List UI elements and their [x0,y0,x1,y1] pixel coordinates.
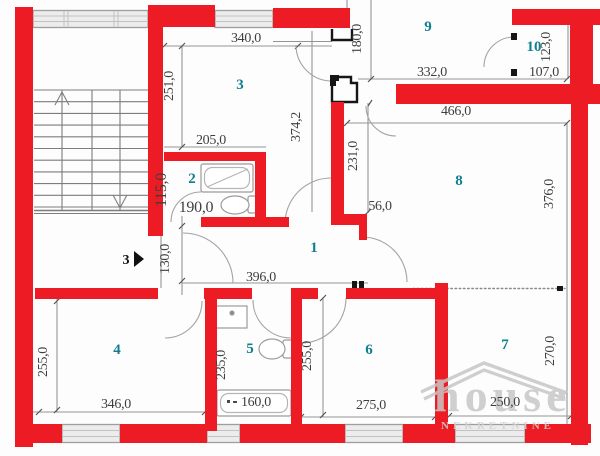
svg-text:3: 3 [236,77,244,93]
svg-text:4: 4 [113,342,121,358]
svg-text:275,0: 275,0 [356,398,386,413]
svg-text:235,0: 235,0 [214,350,229,380]
svg-text:8: 8 [455,173,463,189]
svg-text:1: 1 [310,240,318,256]
svg-text:231,0: 231,0 [346,141,361,171]
svg-text:251,0: 251,0 [162,71,177,101]
svg-text:160,0: 160,0 [241,395,271,410]
svg-text:396,0: 396,0 [246,270,276,285]
svg-text:NEKRETNINE: NEKRETNINE [441,420,555,432]
svg-text:6: 6 [365,342,373,358]
svg-text:2: 2 [188,171,196,187]
svg-text:190,0: 190,0 [179,199,214,216]
svg-text:9: 9 [424,19,432,35]
svg-text:7: 7 [501,337,509,353]
svg-text:250,0: 250,0 [490,395,520,410]
svg-text:5: 5 [246,341,254,357]
svg-text:3: 3 [123,253,130,268]
svg-text:255,0: 255,0 [300,341,315,371]
svg-text:130,0: 130,0 [158,244,173,274]
svg-text:466,0: 466,0 [441,104,471,119]
svg-text:107,0: 107,0 [529,65,559,80]
svg-text:332,0: 332,0 [417,65,447,80]
svg-text:56,0: 56,0 [368,199,392,214]
svg-text:374,2: 374,2 [289,112,304,142]
svg-text:346,0: 346,0 [101,397,131,412]
svg-text:376,0: 376,0 [542,179,557,209]
svg-text:180,0: 180,0 [350,24,365,54]
svg-text:115,0: 115,0 [153,173,170,207]
svg-text:270,0: 270,0 [543,336,558,366]
svg-text:340,0: 340,0 [231,31,261,46]
svg-text:10: 10 [527,39,542,55]
svg-text:255,0: 255,0 [36,347,51,377]
svg-text:205,0: 205,0 [196,133,226,148]
